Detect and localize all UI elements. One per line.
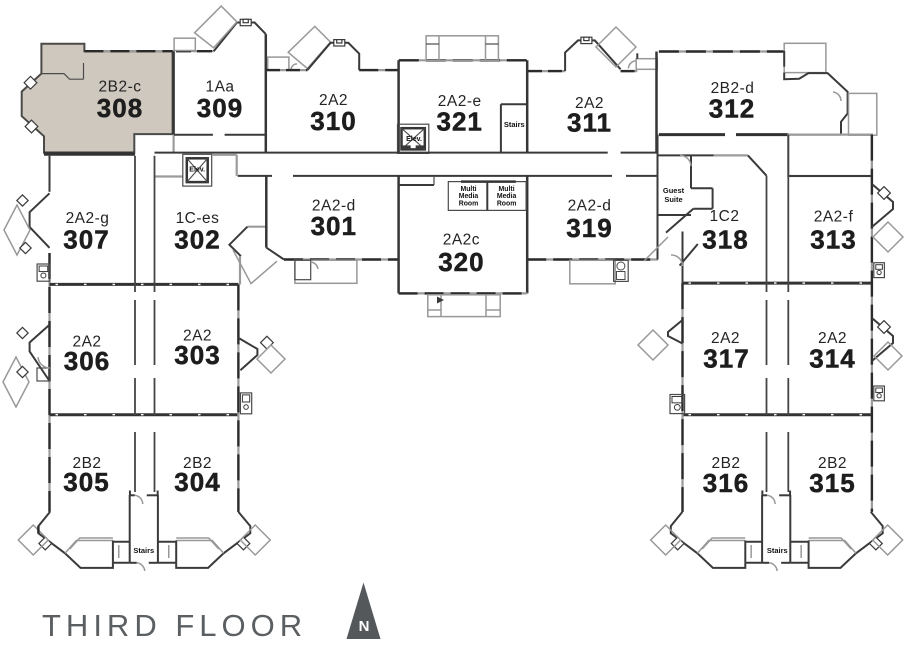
- svg-text:311: 311: [567, 107, 612, 137]
- svg-text:303: 303: [174, 340, 220, 370]
- svg-text:317: 317: [703, 344, 749, 374]
- svg-text:302: 302: [174, 225, 220, 255]
- svg-text:319: 319: [566, 213, 612, 243]
- svg-text:312: 312: [709, 93, 755, 123]
- svg-text:321: 321: [437, 106, 483, 136]
- svg-text:Media: Media: [497, 193, 517, 200]
- svg-text:309: 309: [197, 93, 243, 123]
- svg-text:Stairs: Stairs: [767, 546, 788, 555]
- svg-text:Media: Media: [459, 193, 479, 200]
- svg-text:313: 313: [810, 225, 856, 255]
- svg-text:305: 305: [63, 467, 109, 497]
- svg-text:318: 318: [702, 225, 748, 255]
- svg-text:1C2: 1C2: [710, 208, 740, 225]
- svg-text:315: 315: [809, 468, 855, 498]
- svg-text:2A2-d: 2A2-d: [568, 198, 612, 215]
- svg-text:Suite: Suite: [664, 195, 682, 204]
- svg-text:301: 301: [311, 211, 357, 241]
- svg-text:Elev.: Elev.: [189, 167, 205, 174]
- svg-text:310: 310: [310, 106, 356, 136]
- svg-text:Guest: Guest: [663, 186, 685, 195]
- svg-text:Room: Room: [459, 200, 479, 207]
- svg-text:Multi: Multi: [460, 186, 476, 193]
- svg-text:2A2-f: 2A2-f: [814, 209, 854, 226]
- svg-text:Elev.: Elev.: [406, 136, 422, 143]
- svg-text:316: 316: [703, 468, 749, 498]
- svg-text:306: 306: [64, 346, 110, 376]
- svg-text:308: 308: [97, 93, 143, 123]
- svg-text:320: 320: [438, 247, 484, 277]
- svg-text:Stairs: Stairs: [504, 120, 525, 129]
- svg-text:2A2c: 2A2c: [443, 231, 480, 248]
- svg-text:THIRD FLOOR: THIRD FLOOR: [42, 608, 307, 643]
- svg-text:314: 314: [809, 344, 855, 374]
- svg-text:Multi: Multi: [499, 186, 515, 193]
- svg-text:N: N: [359, 618, 370, 635]
- svg-text:304: 304: [174, 467, 220, 497]
- svg-text:Room: Room: [497, 200, 517, 207]
- svg-text:307: 307: [63, 225, 109, 255]
- svg-text:Stairs: Stairs: [133, 546, 154, 555]
